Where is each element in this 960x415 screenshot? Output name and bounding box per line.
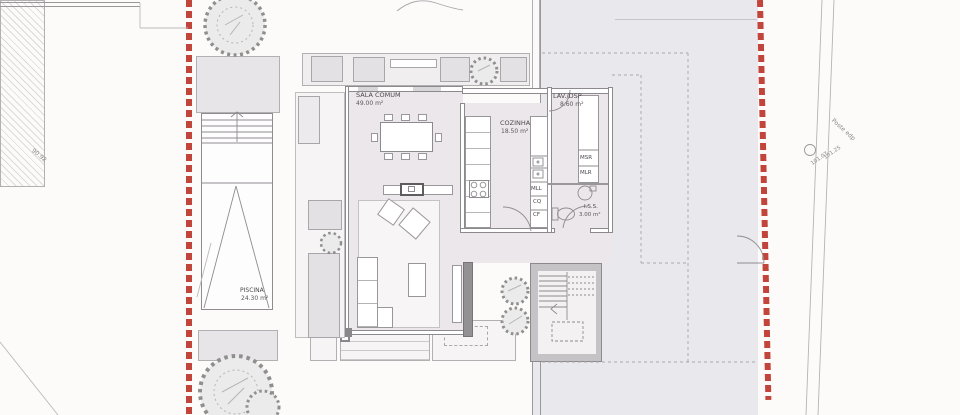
sofa-chaise (377, 307, 393, 328)
yard-line (140, 3, 188, 28)
tree-icon (247, 391, 279, 415)
planter (308, 200, 342, 230)
pool (201, 113, 273, 310)
wall-north-kitchen (462, 88, 612, 94)
wall-feature-dark (463, 262, 473, 337)
dining-table (380, 122, 433, 152)
tree-icon (205, 0, 265, 55)
paved-courtyard-step (532, 362, 540, 415)
wall-east-laundry (608, 87, 613, 233)
garden-steps (340, 332, 430, 361)
coffee-table (408, 263, 426, 297)
dining-chair (418, 153, 427, 160)
planter (308, 253, 340, 338)
pool-deck-south (198, 330, 278, 361)
appliance-mlr-label: MLR (580, 170, 592, 176)
utility-pole-icon (805, 145, 816, 156)
paved-courtyard-edge (615, 19, 757, 20)
pool-label: PISCINA (240, 288, 264, 295)
pool-deck-north (196, 56, 280, 113)
appliance-cq-label: CQ (533, 199, 541, 205)
bench (390, 59, 437, 68)
planter (298, 96, 320, 144)
shrub-icon (502, 278, 528, 304)
wc-label: I.S.S. (584, 204, 598, 210)
sliding-door-panel (413, 87, 441, 91)
wall-gap-strip (532, 0, 540, 88)
site-diagonal-sw (0, 342, 58, 415)
dining-chair (401, 114, 410, 121)
site-curve-top (397, 1, 463, 11)
site-wall-top-left (0, 2, 140, 7)
sofa (357, 257, 378, 328)
dining-chair (401, 153, 410, 160)
cooktop (469, 180, 489, 198)
fireplace-insert (408, 186, 415, 192)
wall-kitchen-south (460, 228, 555, 233)
living-room-area: 49.00 m² (356, 101, 383, 108)
road-edges (806, 0, 834, 415)
planter (440, 57, 470, 82)
stair-well (538, 271, 596, 354)
pool-area: 24.30 m² (241, 296, 268, 303)
property-boundary-west (186, 0, 192, 415)
tree-icon (200, 356, 272, 415)
sideboard (452, 265, 462, 323)
kitchen-label: COZINHA (500, 120, 530, 127)
floor-plan-canvas: SALA COMUM 49.00 m² COZINHA 18.50 m² LAV… (0, 0, 960, 415)
kitchen-area: 18.50 m² (501, 129, 528, 136)
property-boundary-east (757, 0, 771, 400)
dining-chair (435, 133, 442, 142)
laundry-area: 8.60 m² (560, 102, 584, 109)
utility-pole-label: Poste edp (829, 118, 856, 143)
wall-south-glazing (345, 330, 465, 335)
appliance-mll-label: MLL (531, 186, 542, 192)
dining-chair (371, 133, 378, 142)
planter (353, 57, 385, 82)
appliance-msr-label: MSR (580, 155, 592, 161)
planter (500, 57, 527, 82)
wc-area: 3.00 m² (579, 212, 601, 218)
living-room-label: SALA COMUM (356, 92, 401, 99)
dining-chair (384, 114, 393, 121)
kitchen-counter (465, 116, 491, 228)
planter (311, 56, 343, 82)
wall-west-living (345, 86, 349, 334)
dining-chair (384, 153, 393, 160)
appliance-cf-label: CF (533, 212, 540, 218)
dining-chair (418, 114, 427, 121)
laundry-label: LAV./DSP (553, 93, 582, 100)
wall-laundry-wc-divider (548, 183, 608, 185)
